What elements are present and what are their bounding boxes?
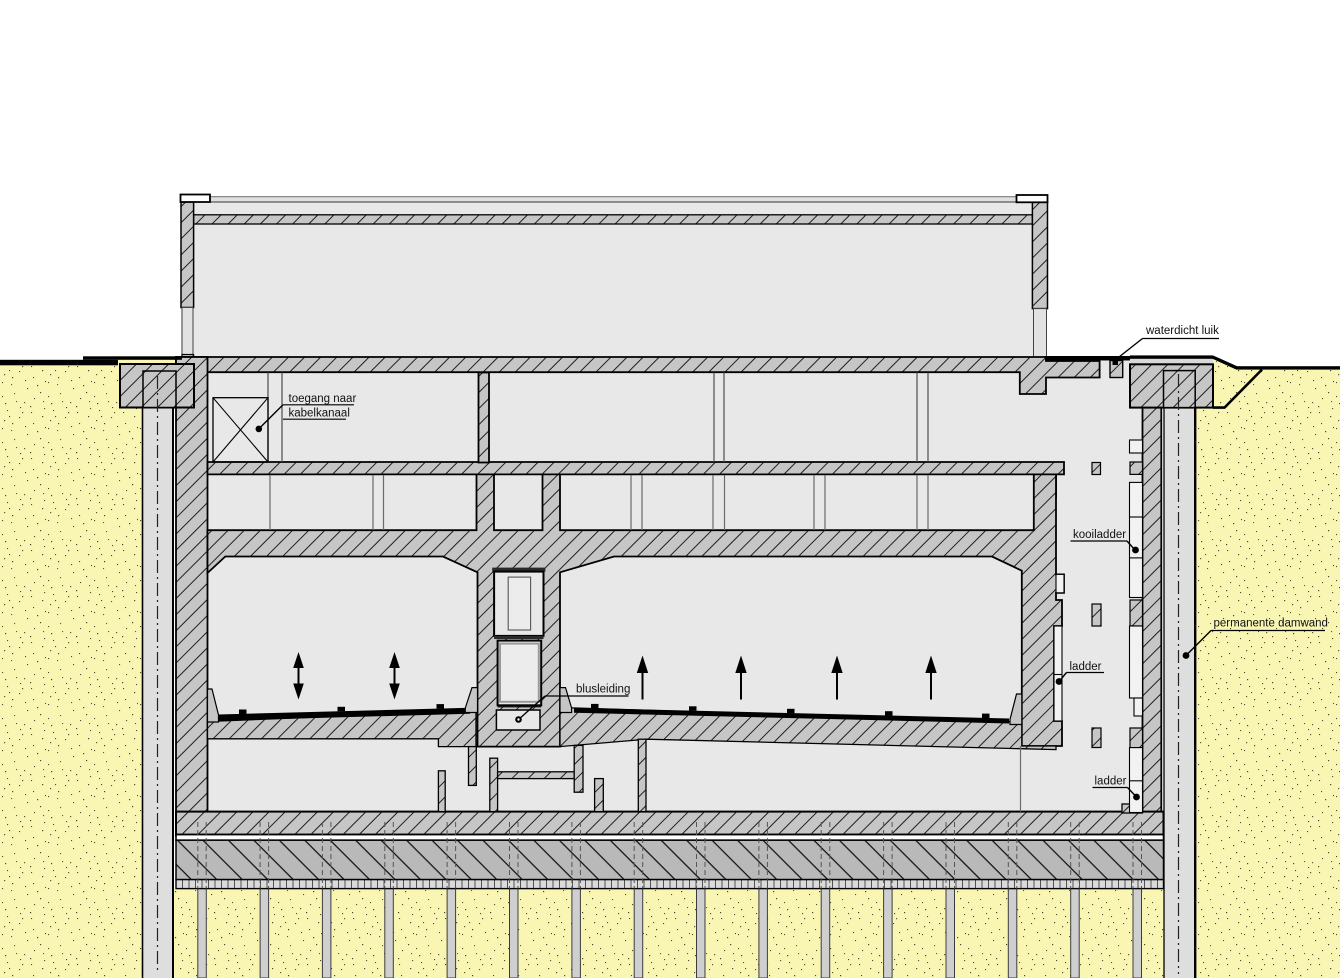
svg-text:waterdicht luik: waterdicht luik	[1145, 325, 1219, 337]
svg-text:toegang naar: toegang naar	[289, 393, 357, 405]
svg-text:ladder: ladder	[1095, 776, 1127, 788]
svg-text:kooiladder: kooiladder	[1073, 529, 1126, 541]
svg-text:permanente damwand: permanente damwand	[1214, 618, 1328, 630]
svg-text:blusleiding: blusleiding	[576, 684, 630, 696]
svg-text:kabelkanaal: kabelkanaal	[289, 408, 350, 420]
svg-text:ladder: ladder	[1070, 661, 1102, 673]
